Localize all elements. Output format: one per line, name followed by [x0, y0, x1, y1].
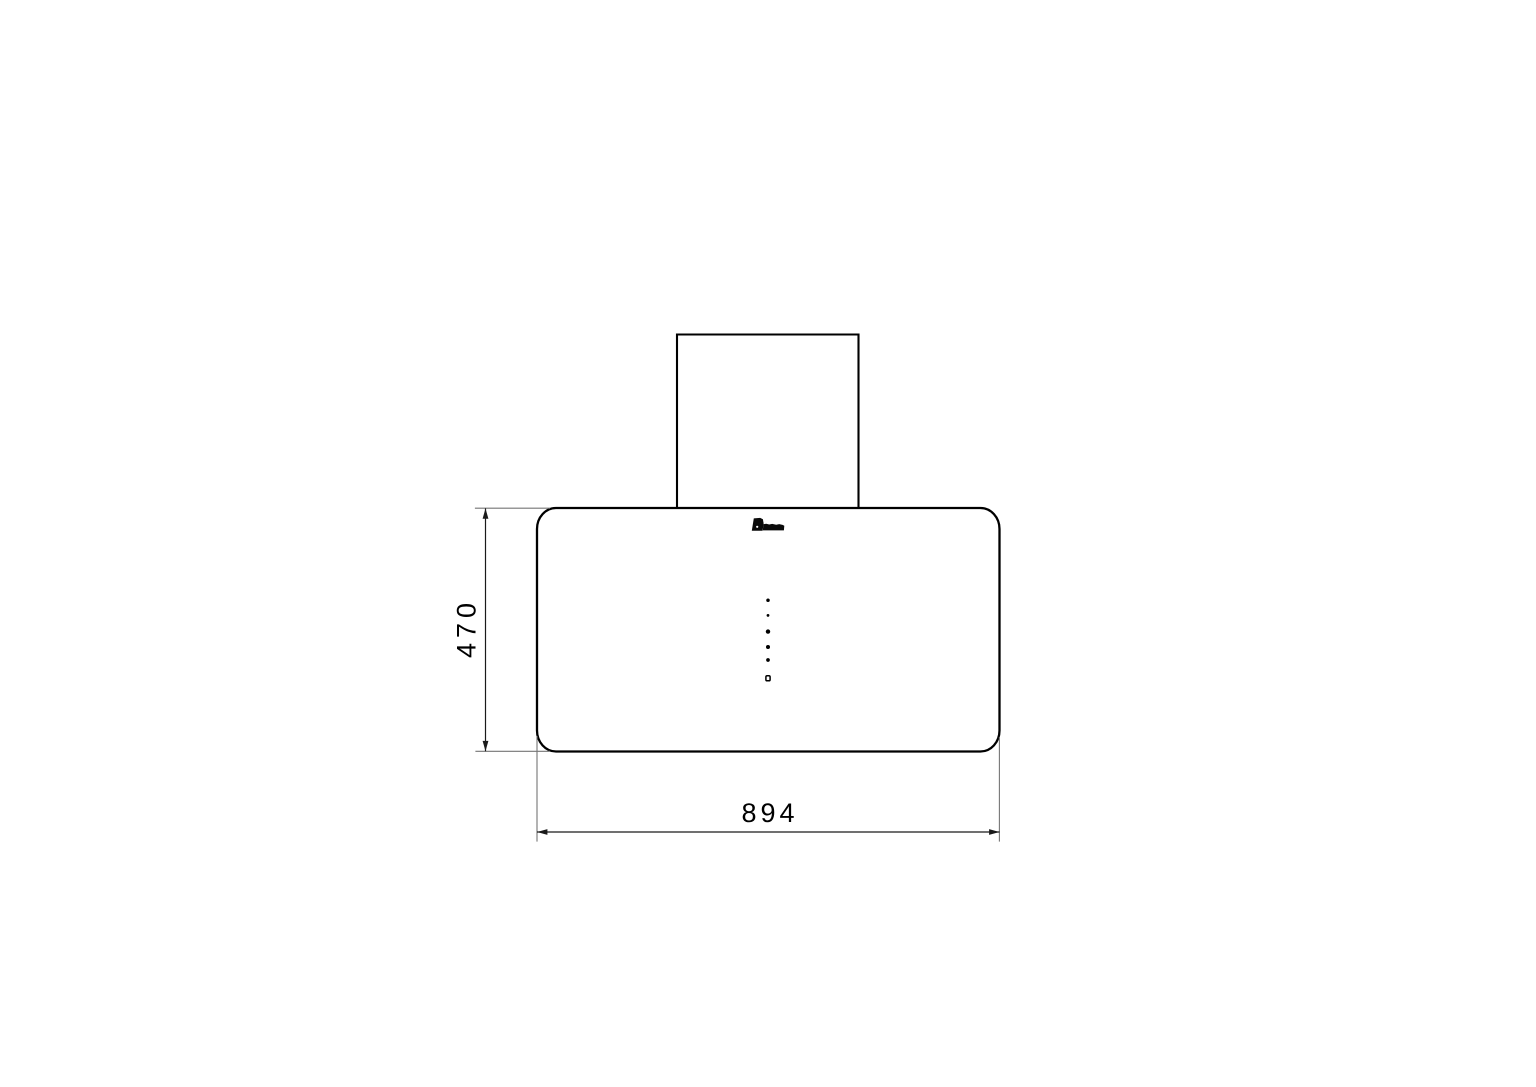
- svg-text:470: 470: [452, 598, 482, 658]
- svg-text:894: 894: [741, 798, 798, 828]
